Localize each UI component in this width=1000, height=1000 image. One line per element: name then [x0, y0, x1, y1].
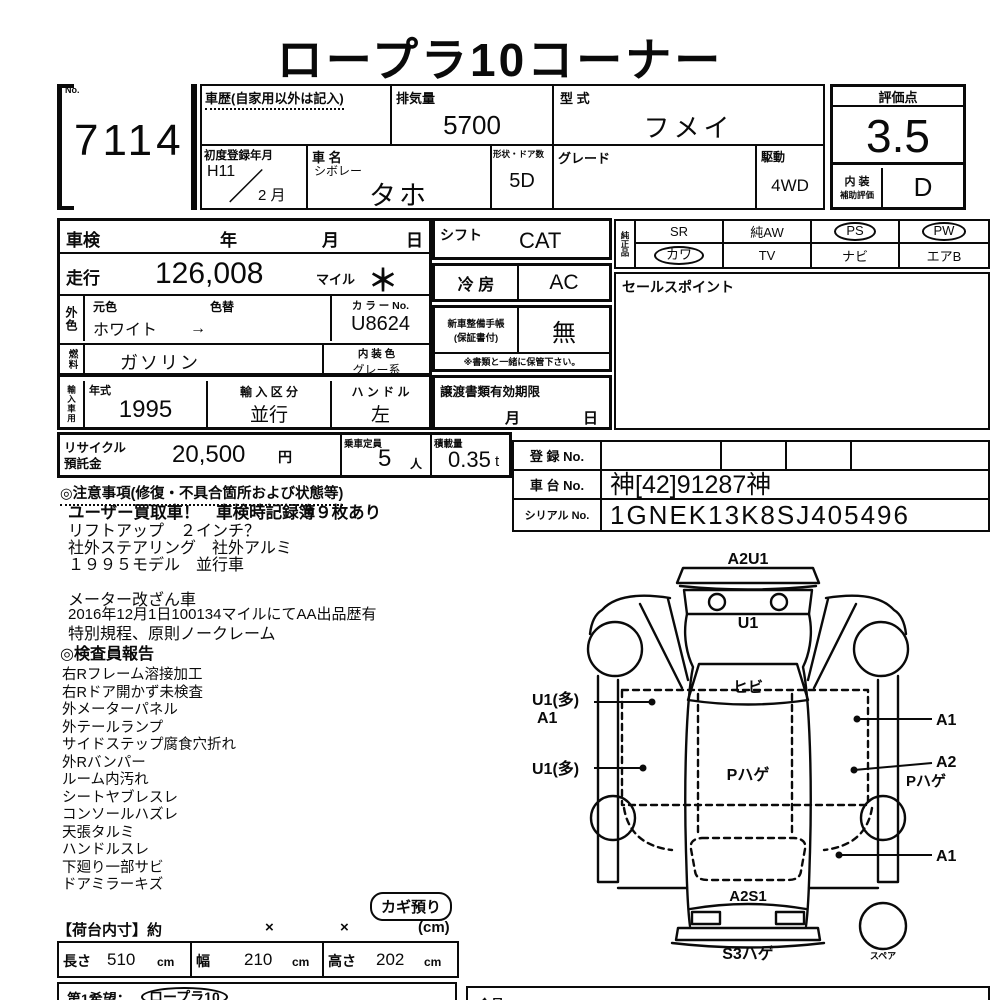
note-line: １９９５モデル 並行車 [68, 551, 244, 575]
spare-label: スペア [870, 951, 896, 961]
rear-window-dashed [691, 838, 806, 880]
car-name-cell: 車 名 シボレー タホ [308, 146, 492, 208]
history-cell: 車歴(自家用以外は記入) [202, 86, 392, 146]
capacity-value: 5 [378, 445, 391, 473]
doors-value: 5D [492, 170, 552, 193]
model-year-cell: 年式 1995 [85, 381, 208, 427]
reg-no-label: 登 録 No. [514, 442, 602, 471]
grille-panel [684, 590, 812, 614]
width-value: 210 [244, 950, 272, 970]
history-label: 車歴(自家用以外は記入) [205, 88, 344, 110]
displacement-label: 排気量 [396, 88, 435, 107]
recycle-row: リサイクル 預託金 20,500 円 乗車定員 5 人 積載量 0.35 t [57, 432, 512, 478]
mileage-value: 126,008 [155, 257, 263, 291]
shaken-month: 月 [322, 226, 339, 251]
recycle-fee-cell: リサイクル 預託金 20,500 円 [60, 435, 342, 475]
leader-dot [851, 767, 858, 774]
int-color-cell: 内 装 色 グレー系 [322, 345, 429, 373]
wish-label: 第1希望： [67, 989, 131, 1000]
damage-label-roof: Pハゲ [727, 765, 770, 784]
auction-sheet: ロープラ10コーナー No. 7114 車歴(自家用以外は記入) 排気量 570… [0, 0, 1000, 1000]
model-code-label: 型 式 [560, 88, 590, 107]
interior-rating-value: D [883, 168, 963, 207]
drive-label: 駆動 [761, 148, 785, 165]
rating-box: 評価点 3.5 内 装 補助評価 D [830, 84, 966, 210]
wheel-front-right [854, 622, 908, 676]
mileage-unit: マイル [316, 269, 355, 288]
int-color-label: 内 装 色 [324, 346, 429, 361]
displacement-cell: 排気量 5700 [392, 86, 554, 146]
capacity-unit: 人 [410, 455, 422, 472]
record-label-cell: 新車整備手帳 (保証書付) [435, 308, 519, 352]
damage-label-hood: U1 [738, 615, 759, 632]
transfer-day: 日 [583, 407, 598, 428]
damage-label-left-3: U1(多) [532, 759, 579, 778]
mileage-row: 走行 126,008 マイル ＊ [60, 254, 429, 296]
rear-bumper [676, 928, 820, 940]
inspector-item: 天張タルミ [62, 825, 236, 843]
right-fender-curve [826, 596, 906, 634]
record-box: 新車整備手帳 (保証書付) 無 ※書類と一緒に保管下さい。 [432, 305, 612, 372]
doors-cell: 形状・ドア数 5D [492, 146, 554, 208]
ac-label: 冷 房 [435, 266, 519, 299]
inspector-item: サイドステップ腐食穴折れ [62, 737, 236, 755]
sales-point-box: セールスポイント [614, 272, 990, 430]
leader-line [854, 763, 932, 770]
color-no-cell: カ ラ ー No. U8624 [330, 296, 429, 341]
doors-label: 形状・ドア数 [493, 148, 544, 160]
transfer-label: 譲渡書類有効期限 [440, 381, 540, 400]
first-reg-cell: 初度登録年月 H11 ／ 2 月 [202, 146, 308, 208]
ac-value: AC [519, 266, 609, 299]
import-class-cell: 輸 入 区 分 並行 [208, 381, 332, 427]
color-no-label: カ ラ ー No. [332, 298, 429, 313]
capacity-cell: 乗車定員 5 人 [342, 435, 432, 475]
shaken-year: 年 [220, 226, 237, 251]
height-value: 202 [376, 950, 404, 970]
grade-label: グレード [558, 148, 610, 167]
recolor-label: 色替 [210, 298, 234, 315]
spare-tire [860, 903, 906, 949]
equipment-item-aw: 純AW [724, 221, 812, 244]
lot-bracket-line [57, 206, 74, 210]
import-label: 輸入車用 [66, 385, 78, 423]
first-wish-box: 第1希望： ロープラ10 [57, 982, 457, 1000]
color-arrow: → [190, 320, 206, 338]
fuel-label: 燃料 [65, 349, 79, 370]
interior-label-bottom: 補助評価 [833, 189, 881, 201]
drive-value: 4WD [757, 176, 823, 196]
reg-divider [720, 442, 722, 471]
int-color-value: グレー系 [324, 361, 429, 378]
cargo-header: 【荷台内寸】約 × × (cm) [57, 919, 459, 939]
circled-mark: カワ [654, 246, 704, 265]
car-name-value: タホ [308, 174, 490, 213]
headlight-left [709, 594, 725, 610]
color-no-value: U8624 [332, 313, 429, 336]
damage-label-right-4: A1 [936, 848, 957, 865]
equipment-item-ps: PS [812, 221, 900, 244]
body-side-right [803, 614, 811, 926]
damage-label-right-1: A1 [936, 712, 957, 729]
inspector-item: 外Rバンパー [62, 755, 236, 773]
height-unit: cm [424, 955, 441, 969]
damage-label-right-2: A2 [936, 754, 957, 771]
equipment-item-airbag: エアB [900, 244, 988, 267]
model-code-cell: 型 式 フメイ [554, 86, 823, 146]
equipment-item-pw: PW [900, 221, 988, 244]
inspector-item: ドアミラーキズ [62, 877, 236, 895]
grade-cell: グレード [554, 146, 757, 208]
inspector-item: ハンドルスレ [62, 842, 236, 860]
import-class-value: 並行 [208, 400, 330, 427]
drive-cell: 駆動 4WD [757, 146, 823, 208]
sales-point-label: セールスポイント [622, 277, 734, 297]
displacement-value: 5700 [392, 110, 552, 141]
inspection-table: 車検 年 月 日 走行 126,008 マイル ＊ 外色 元色 色替 ホワイト … [57, 218, 432, 430]
inspector-item: コンソールハズレ [62, 807, 236, 825]
shaken-label: 車検 [66, 226, 100, 251]
recycle-fee: 20,500 [172, 441, 245, 469]
left-sill-strip [598, 676, 687, 888]
damage-label-windshield: ヒビ [733, 679, 763, 696]
equipment-item-tv: TV [724, 244, 812, 267]
handle-label: ハ ン ド ル [332, 383, 429, 400]
inspector-item: 外テールランプ [62, 720, 236, 738]
damage-diagram: A2U1 U1 ヒビ U1(多) A1 U1(多) Pハゲ A1 A2 Pハゲ … [520, 552, 1000, 980]
damage-label-right-3: Pハゲ [906, 772, 946, 790]
import-class-label: 輸 入 区 分 [208, 383, 330, 400]
key-kept-badge: カギ預り [370, 892, 452, 921]
import-row: 輸入車用 年式 1995 輸 入 区 分 並行 ハ ン ド ル 左 [60, 381, 429, 427]
leader-dot [836, 852, 843, 859]
transfer-month: 月 [505, 407, 520, 428]
inspector-item: ルーム内汚れ [62, 772, 236, 790]
reg-divider [785, 442, 787, 471]
ext-color-label: 外色 [63, 306, 80, 332]
handle-cell: ハ ン ド ル 左 [332, 381, 429, 427]
separator-bar [191, 84, 197, 210]
shift-value: CAT [519, 228, 561, 254]
record-label-2: (保証書付) [435, 330, 517, 344]
wish-value: ロープラ10 [141, 987, 228, 1000]
leader-dot [640, 765, 647, 772]
front-bumper [677, 568, 819, 583]
load-cell: 積載量 0.35 t [432, 435, 509, 475]
damage-label-front: A2U1 [728, 552, 769, 568]
recycle-fee-unit: 円 [278, 447, 292, 467]
color-value: ホワイト [93, 316, 157, 340]
inspector-item: 右Rフレーム溶接加工 [62, 667, 236, 685]
fuel-value: ガソリン [120, 349, 200, 375]
chassis-no-value: 神[42]91287神 [602, 471, 988, 500]
mileage-label: 走行 [66, 264, 100, 289]
length-label: 長さ [63, 951, 91, 971]
body-side-left [685, 614, 693, 926]
member-no-box: 会員No [466, 986, 990, 1000]
fuel-row: 燃料 ガソリン 内 装 色 グレー系 [60, 345, 429, 377]
first-reg-month: 2 月 [258, 184, 286, 205]
damage-label-rear-bottom: S3ハゲ [722, 944, 774, 963]
fuel-label-cell: 燃料 [60, 345, 85, 373]
mileage-asterisk: ＊ [368, 256, 398, 300]
load-value: 0.35 [448, 447, 491, 473]
lot-no-label: No. [65, 85, 80, 95]
load-unit: t [495, 453, 499, 470]
model-year-value: 1995 [85, 396, 206, 424]
inspector-item: 下廻り一部サビ [62, 860, 236, 878]
registration-table: 登 録 No. 車 台 No. 神[42]91287神 シリアル No. 1GN… [512, 440, 990, 532]
import-label-cell: 輸入車用 [60, 381, 85, 427]
record-value: 無 [519, 308, 609, 352]
equipment-table: 純正品 SR 純AW PS PW カワ TV ナビ エアB [614, 219, 990, 269]
inspector-item: シートヤブレスレ [62, 790, 236, 808]
equipment-label: 純正品 [619, 231, 631, 257]
equipment-label-cell: 純正品 [616, 221, 636, 267]
equipment-item-navi: ナビ [812, 244, 900, 267]
cargo-times-1: × [265, 919, 274, 936]
headlight-right [771, 594, 787, 610]
cargo-length-cell: 長さ 510 cm [59, 943, 192, 976]
shift-label: シフト [440, 225, 482, 245]
member-no-label: 会員No [478, 994, 521, 1000]
damage-label-left-1: U1(多) [532, 690, 579, 709]
left-fender-curve [590, 596, 670, 634]
ac-box: 冷 房 AC [432, 263, 612, 302]
transfer-box: 譲渡書類有効期限 月 日 [432, 375, 612, 430]
ext-color-label-cell: 外色 [60, 296, 85, 341]
width-label: 幅 [196, 951, 210, 971]
page-title: ロープラ10コーナー [0, 24, 1000, 90]
right-sill-strip [809, 676, 898, 888]
reg-divider [850, 442, 852, 471]
inspector-heading: ◎検査員報告 [60, 640, 154, 664]
circled-mark: PS [834, 222, 875, 241]
keep-note: ※書類と一緒に保管下さい。 [435, 352, 609, 369]
rating-score: 3.5 [833, 109, 963, 165]
serial-no-label: シリアル No. [514, 500, 602, 530]
lot-bracket-line [57, 84, 62, 210]
width-unit: cm [292, 955, 309, 969]
cargo-heading: 【荷台内寸】約 [57, 919, 162, 940]
left-door-edge [640, 599, 688, 688]
shaken-row: 車検 年 月 日 [60, 221, 429, 254]
inspector-item: 右Rドア開かず未検査 [62, 685, 236, 703]
inspector-item-list: 右Rフレーム溶接加工 右Rドア開かず未検査 外メーターパネル 外テールランプ サ… [62, 667, 236, 895]
header-table: 車歴(自家用以外は記入) 排気量 5700 型 式 フメイ 初度登録年月 H11… [200, 84, 825, 210]
leader-dot [649, 699, 656, 706]
height-label: 高さ [328, 951, 356, 971]
handle-value: 左 [332, 400, 429, 427]
equipment-item-kawa: カワ [636, 244, 724, 267]
circled-mark: PW [922, 222, 967, 241]
right-door-edge [808, 599, 856, 688]
equipment-item-sr: SR [636, 221, 724, 244]
chassis-no-label: 車 台 No. [514, 471, 602, 500]
orig-color-label: 元色 [93, 298, 117, 315]
roof-edges-dashed [698, 694, 792, 835]
cargo-unit-note: (cm) [418, 919, 450, 936]
leader-dot [854, 716, 861, 723]
shift-box: シフト CAT [432, 218, 612, 260]
cargo-table: 長さ 510 cm 幅 210 cm 高さ 202 cm [57, 941, 459, 978]
reg-no-value [602, 442, 988, 471]
taillight-left [692, 912, 720, 924]
lot-number: 7114 [74, 116, 185, 166]
damage-label-left-2: A1 [537, 710, 558, 727]
record-label-1: 新車整備手帳 [435, 316, 517, 330]
interior-rating-label-cell: 内 装 補助評価 [833, 168, 883, 207]
cargo-times-2: × [340, 919, 349, 936]
interior-label-top: 内 装 [833, 173, 881, 189]
serial-no-value: 1GNEK13K8SJ405496 [602, 500, 988, 530]
floor-frame-dashed [622, 690, 868, 805]
length-value: 510 [107, 950, 135, 970]
capacity-label: 乗車定員 [344, 436, 382, 450]
cargo-height-cell: 高さ 202 cm [324, 943, 457, 976]
color-row: 外色 元色 色替 ホワイト → カ ラ ー No. U8624 [60, 296, 429, 345]
cargo-width-cell: 幅 210 cm [192, 943, 324, 976]
length-unit: cm [157, 955, 174, 969]
damage-label-rear: A2S1 [729, 888, 767, 905]
shaken-day: 日 [406, 226, 423, 251]
wheel-front-left [588, 622, 642, 676]
taillight-right [776, 912, 804, 924]
rating-label: 評価点 [833, 87, 963, 107]
recycle-label-2: 預託金 [64, 453, 102, 472]
model-code-value: フメイ [554, 108, 823, 145]
inspector-item: 外メーターパネル [62, 702, 236, 720]
